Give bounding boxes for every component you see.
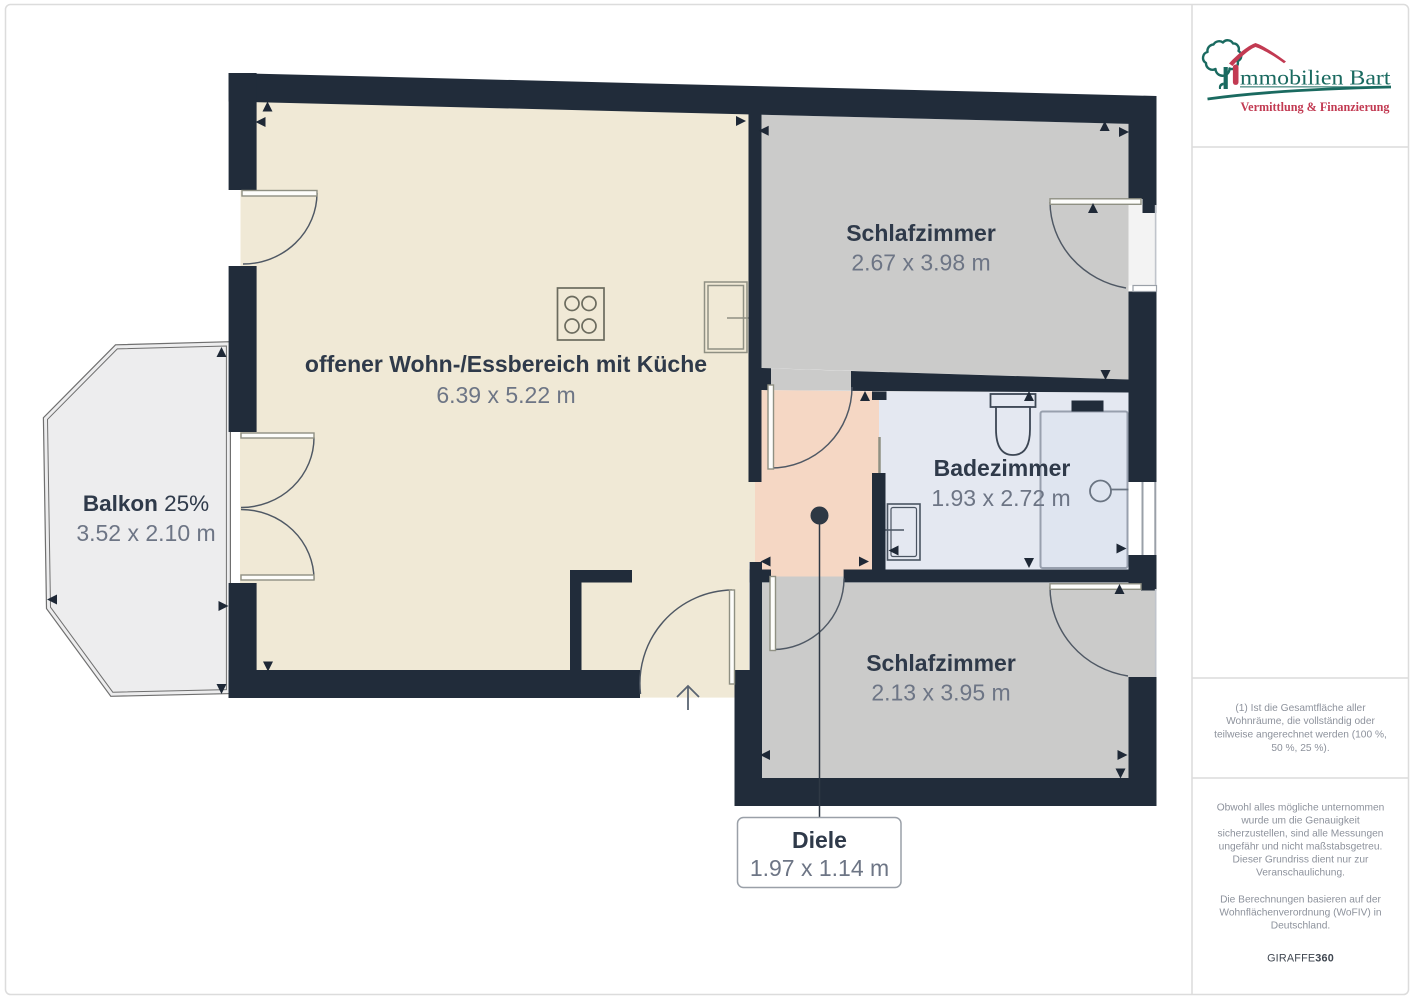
svg-text:sicherzustellen, sind alle Mes: sicherzustellen, sind alle Messungen bbox=[1218, 828, 1384, 839]
svg-text:Vermittlung & Finanzierung: Vermittlung & Finanzierung bbox=[1241, 99, 1390, 114]
svg-text:ungefähr und nicht maßstabsget: ungefähr und nicht maßstabsgetreu. bbox=[1219, 841, 1383, 852]
svg-text:offener Wohn-/Essbereich mit K: offener Wohn-/Essbereich mit Küche bbox=[305, 351, 707, 377]
svg-text:Obwohl alles mögliche unternom: Obwohl alles mögliche unternommen bbox=[1217, 802, 1385, 813]
svg-text:(1) Ist die Gesamtfläche aller: (1) Ist die Gesamtfläche aller bbox=[1235, 703, 1366, 714]
svg-text:Deutschland.: Deutschland. bbox=[1271, 920, 1330, 931]
svg-text:teilweise angerechnet werden (: teilweise angerechnet werden (100 %, bbox=[1214, 730, 1387, 741]
svg-text:wurde um die Genauigkeit: wurde um die Genauigkeit bbox=[1240, 815, 1360, 826]
svg-text:Badezimmer: Badezimmer bbox=[934, 455, 1071, 481]
svg-text:50 %, 25 %).: 50 %, 25 %). bbox=[1271, 743, 1329, 754]
svg-text:Dieser Grundriss dient nur zur: Dieser Grundriss dient nur zur bbox=[1233, 854, 1369, 865]
svg-text:Veranschaulichung.: Veranschaulichung. bbox=[1256, 867, 1345, 878]
svg-text:GIRAFFE360: GIRAFFE360 bbox=[1267, 953, 1334, 965]
svg-text:6.39 x 5.22 m: 6.39 x 5.22 m bbox=[436, 382, 575, 408]
svg-text:mmobilien Bart: mmobilien Bart bbox=[1240, 65, 1391, 89]
svg-text:Wohnräume, die vollständig ode: Wohnräume, die vollständig oder bbox=[1226, 716, 1375, 727]
svg-text:Die Berechnungen basieren auf: Die Berechnungen basieren auf der bbox=[1220, 894, 1381, 905]
svg-text:Schlafzimmer: Schlafzimmer bbox=[866, 650, 1016, 676]
svg-text:2.13 x 3.95 m: 2.13 x 3.95 m bbox=[871, 680, 1010, 706]
svg-text:Diele: Diele bbox=[792, 827, 847, 853]
svg-text:Wohnflächenverordnung (WoFIV): Wohnflächenverordnung (WoFIV) in bbox=[1219, 907, 1381, 918]
svg-text:2.67 x 3.98 m: 2.67 x 3.98 m bbox=[851, 250, 990, 276]
svg-text:Schlafzimmer: Schlafzimmer bbox=[846, 220, 996, 246]
svg-text:Balkon 25%: Balkon 25% bbox=[83, 491, 209, 516]
svg-text:1.93 x 2.72 m: 1.93 x 2.72 m bbox=[931, 485, 1070, 511]
svg-text:3.52 x 2.10 m: 3.52 x 2.10 m bbox=[76, 520, 215, 546]
svg-text:1.97 x 1.14 m: 1.97 x 1.14 m bbox=[750, 855, 889, 881]
